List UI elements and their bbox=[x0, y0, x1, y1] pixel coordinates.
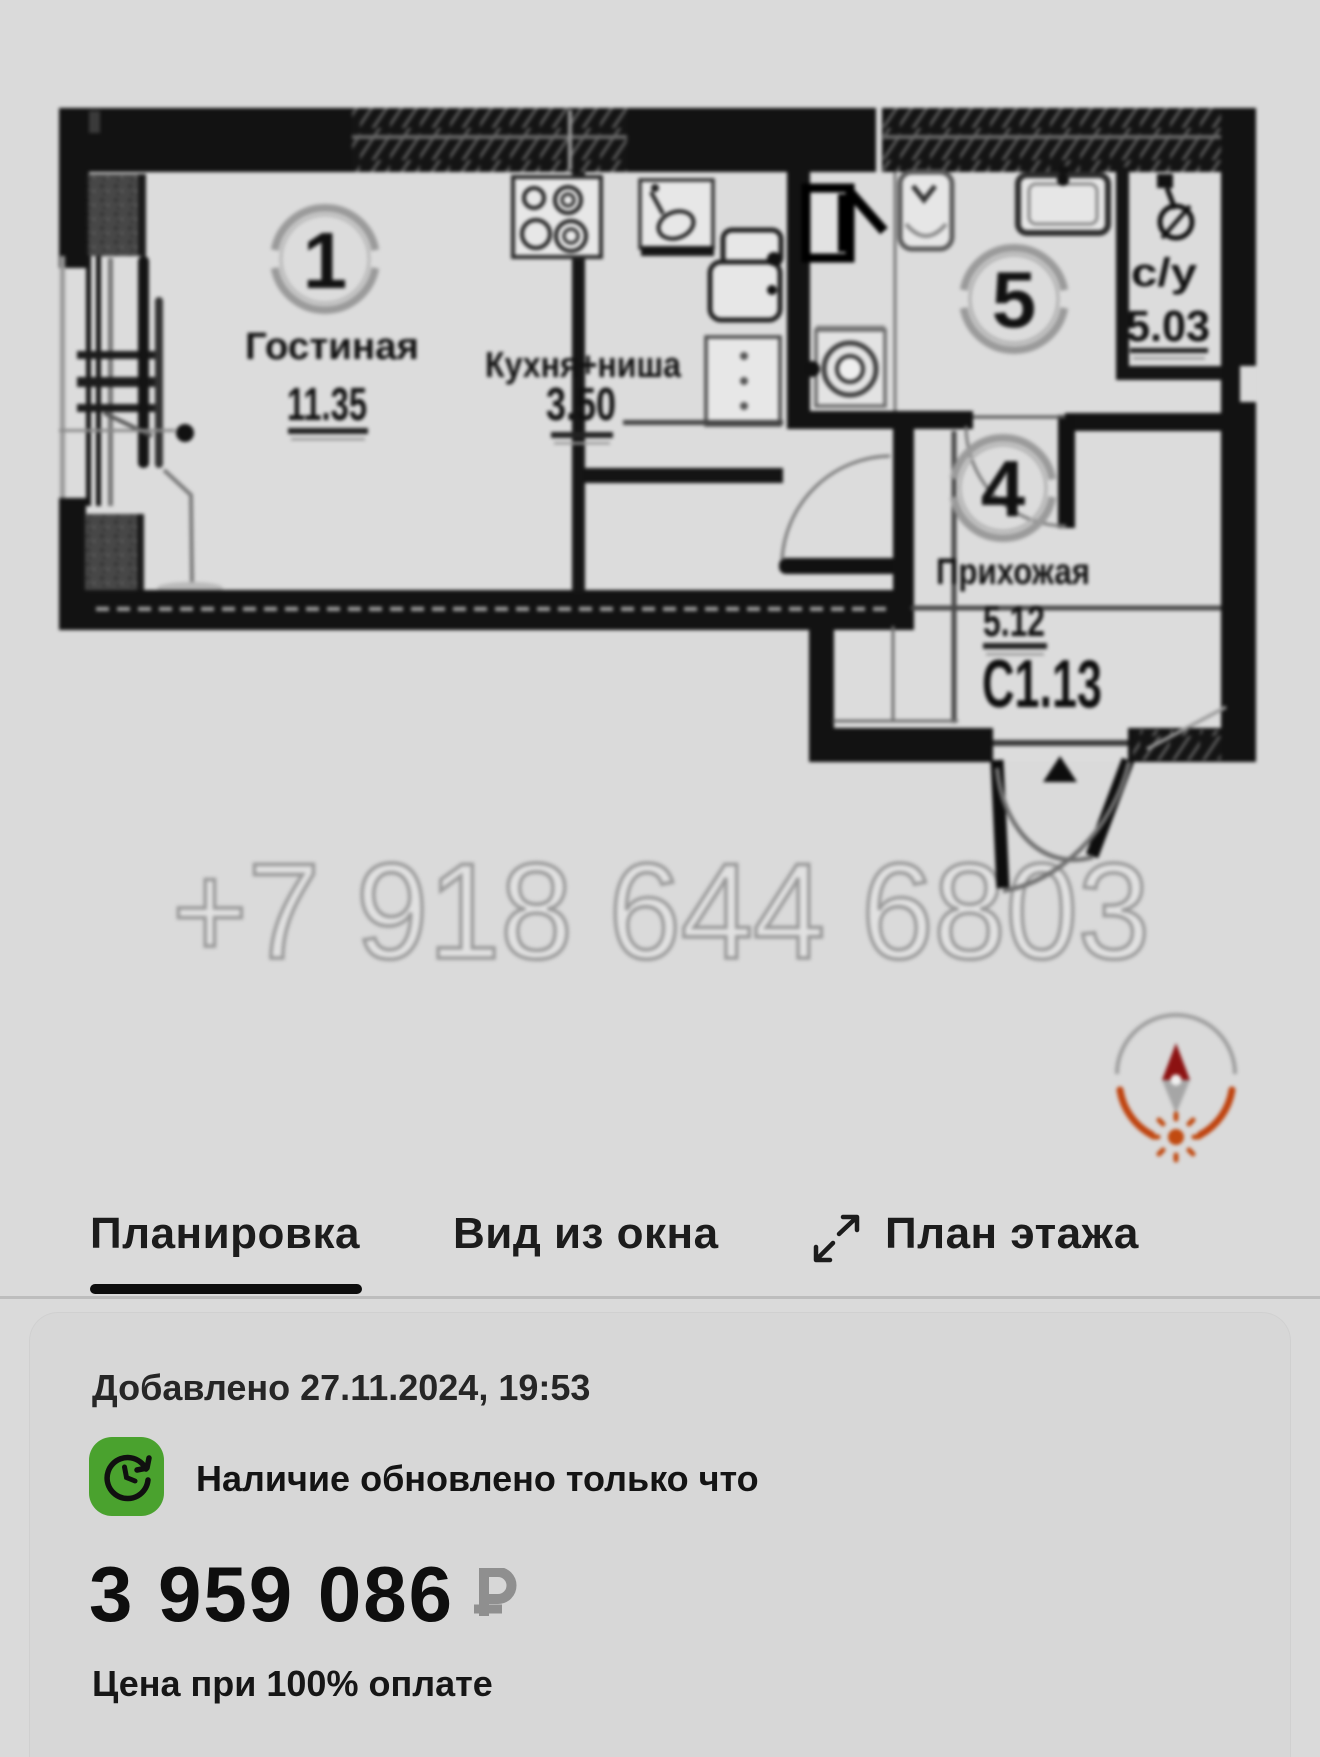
svg-text:С1.13: С1.13 bbox=[982, 646, 1102, 722]
svg-text:Прихожая: Прихожая bbox=[936, 551, 1090, 592]
svg-text:Гостиная: Гостиная bbox=[245, 326, 419, 368]
svg-text:5.12: 5.12 bbox=[983, 597, 1045, 646]
svg-text:5: 5 bbox=[992, 255, 1037, 344]
svg-text:11.35: 11.35 bbox=[287, 378, 367, 430]
svg-text:1: 1 bbox=[303, 216, 348, 305]
svg-text:3.50: 3.50 bbox=[546, 378, 616, 430]
svg-text:5.03: 5.03 bbox=[1126, 302, 1210, 351]
svg-text:4: 4 bbox=[981, 444, 1026, 533]
svg-text:с/у: с/у bbox=[1131, 251, 1198, 295]
